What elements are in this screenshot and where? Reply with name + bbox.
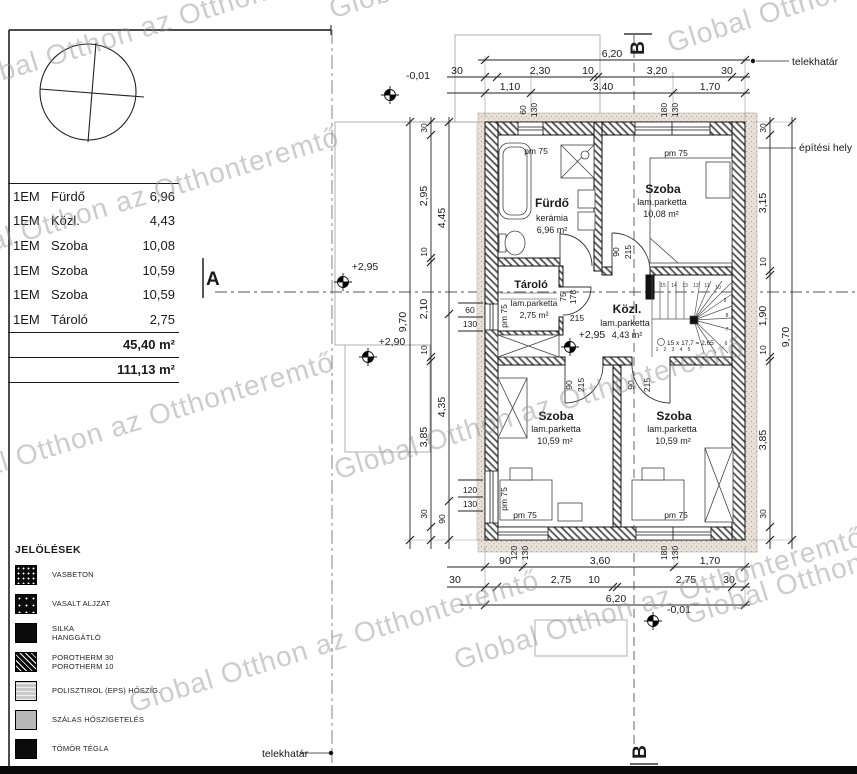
porotherm-swatch-icon [15,652,37,672]
dim: 180 [659,546,669,560]
legend-label: VASALT ALJZAT [52,599,110,608]
door-dim: 90 [564,380,574,390]
row-name: Közl. [51,213,123,228]
dim: 30 [721,65,733,77]
dim: 130 [670,546,680,560]
dim: 10 [588,574,600,586]
dim: 30 [451,65,463,77]
window-left-small [485,304,498,330]
stair-no: 15 [660,283,666,289]
stair-no: 4 [680,347,683,353]
row-area: 6,96 [123,189,179,204]
table-row: 1EMSzoba10,08 [8,233,179,258]
legend-item: VASALT ALJZAT [15,594,245,614]
row-floor: 1EM [8,189,51,204]
stair-no: 6 [725,341,728,347]
fiber-insulation-swatch-icon [15,710,37,730]
dim-left-total: 9,70 [397,312,409,333]
row-name: Tároló [51,312,123,327]
dim: 30 [758,509,768,519]
row-floor: 1EM [8,238,51,253]
dim: 30 [758,123,768,133]
table-row: 1EMTároló2,75 [8,307,179,332]
dim: 120 [509,546,519,560]
dim: 130 [670,103,680,117]
dim: 180 [659,103,669,117]
room-mat: lam.parketta [647,424,697,434]
stair-no: 10 [715,285,721,291]
door-dim: 215 [570,313,584,323]
dim: 30 [723,574,735,586]
table-total-row: 111,13 m² [8,358,179,382]
dim: 3,40 [593,81,614,93]
dim: 10 [419,247,429,257]
dim: 3,85 [418,427,430,448]
stair-no: 5 [688,347,691,353]
table-row: 1EMSzoba10,59 [8,258,179,283]
door-dim: 215 [642,378,652,392]
row-area: 10,59 [123,287,179,302]
stair-no: 14 [671,283,677,289]
legend-item: TÖMÖR TÉGLA [15,739,245,759]
dim: 2,75 [676,574,697,586]
legend: JELÖLÉSEK VASBETON VASALT ALJZAT SILKAHA… [15,544,245,759]
stair-no: 13 [682,283,688,289]
pm75-label: pm 75 [524,146,548,156]
window-left-large [485,471,498,523]
stair-no: 9 [724,298,727,304]
row-floor: 1EM [8,213,51,228]
dim: 3,60 [590,555,611,567]
dim: 3,85 [757,430,769,451]
dim: 3,15 [757,193,769,214]
room-mat: kerámia [536,213,568,223]
legend-label: POROTHERM 10 [52,662,114,671]
legend-item: POLISZTIROL (EPS) HŐSZIG. [15,681,245,701]
blueprint-page: A B B [0,0,857,774]
room-mat: lam.parketta [600,318,650,328]
closet-shaft [498,335,559,357]
legend-label: POROTHERM 30 [52,653,114,662]
washbasin [578,190,595,208]
row-name: Szoba [51,287,123,302]
legend-label: VASBETON [52,570,94,579]
dim: 4,45 [436,208,448,229]
section-marker-b-top: B [628,41,649,55]
row-name: Szoba [51,238,123,253]
row-name: Fürdő [51,189,123,204]
dim: 30 [449,574,461,586]
dim-top-total: 6,20 [602,48,623,60]
legend-label: HANGGÁTLÓ [52,633,101,642]
stair-no: 1 [656,347,659,353]
side-table [558,503,582,521]
table-subtotal-row: 45,40 m² [8,333,179,357]
section-marker-a: A [206,269,220,290]
telekhatar-label-bottom: telekhatár [262,748,309,760]
row-area: 4,43 [123,213,179,228]
dim: 10 [758,345,768,355]
pm75-label: pm 75 [513,510,537,520]
level-plus295: +2,95 [352,261,379,273]
subtotal-value: 45,40 m² [8,337,179,352]
wardrobe [705,448,733,522]
table-row: 1EMFürdő6,96 [8,184,179,209]
level-minus001-bottom: -0,01 [667,604,691,616]
dim: 60 [465,305,475,315]
eps-insulation-swatch-icon [15,681,37,701]
area-table: 1EMFürdő6,96 1EMKözl.4,43 1EMSzoba10,08 … [8,183,179,383]
dim: 1,70 [700,555,721,567]
room-area: 6,96 m² [537,225,568,235]
table-row: 1EMKözl.4,43 [8,209,179,234]
pm75-label: pm 75 [664,510,688,520]
table-row: 1EMSzoba10,59 [8,282,179,307]
dim-bottom-total: 6,20 [606,593,627,605]
dim: 10 [758,257,768,267]
level-plus290: +2,90 [379,336,406,348]
reinforced-concrete-swatch-icon [15,565,37,585]
dim: 90 [437,514,447,524]
dim: 130 [529,103,539,117]
shower [561,145,594,178]
room-kozl: Közl. [613,302,642,316]
room-szoba-br: Szoba [656,409,692,423]
room-tarolo: Tároló [514,279,548,291]
stair-no: 2 [664,347,667,353]
door-dim: 75 [558,292,568,302]
window-bottom-left [498,527,548,540]
legend-item: POROTHERM 30POROTHERM 10 [15,652,245,672]
row-floor: 1EM [8,312,51,327]
room-szoba-bl: Szoba [538,409,574,423]
room-area: 4,43 m² [612,330,643,340]
dim-right-total: 9,70 [780,327,792,348]
total-value: 111,13 m² [8,362,179,377]
legend-item: SILKAHANGGÁTLÓ [15,623,245,643]
north-compass-icon [40,43,144,142]
dim: 3,20 [647,65,668,77]
room-mat: lam.parketta [637,197,687,207]
dim: 2,75 [551,574,572,586]
stair-no: 11 [704,283,709,289]
room-mat: lam.parketta [511,298,558,308]
dim: 130 [463,499,477,509]
legend-item: VASBETON [15,565,245,585]
row-floor: 1EM [8,263,51,278]
silka-swatch-icon [15,623,37,643]
telekhatar-label-top: telekhatár [792,56,839,68]
door-dim: 90 [626,380,636,390]
stair-no: 8 [726,313,729,319]
reinforced-screed-swatch-icon [15,594,37,614]
window-top-large [635,122,710,135]
dim: 30 [419,509,429,519]
epitesi-hely-label: építési hely [799,142,853,154]
door-dim: 90 [611,247,621,257]
pm75-label: pm 75 [499,304,509,328]
dim: 130 [520,546,530,560]
row-floor: 1EM [8,287,51,302]
room-szoba-top: Szoba [645,182,681,196]
legend-label: SZÁLAS HŐSZIGETELÉS [52,715,144,724]
solid-brick-swatch-icon [15,739,37,759]
door-bathroom [560,232,592,266]
level-plus295-inner: +2,95 [579,329,606,341]
dim: 2,95 [418,186,430,207]
window-top-small [518,122,543,135]
door-dim: 215 [576,378,586,392]
room-area: 10,59 m² [655,436,691,446]
dim: 1,10 [500,81,521,93]
sheet-bottom-bar [0,766,857,774]
window-bottom-right [636,527,711,540]
stair-formula: 15 x 17,7 = 2,65 [667,340,714,347]
dim: 120 [463,485,477,495]
room-area: 10,59 m² [537,436,573,446]
stair-no: 3 [672,347,675,353]
dim: 4,35 [436,397,448,418]
room-mat: lam.parketta [531,424,581,434]
wardrobe [498,378,527,438]
room-area: 10,08 m² [643,209,679,219]
legend-item: SZÁLAS HŐSZIGETELÉS [15,710,245,730]
row-area: 10,08 [123,238,179,253]
dim: 60 [518,105,528,115]
dim: 10 [419,345,429,355]
washbasin [578,212,595,230]
pm75-label: pm 75 [664,148,688,158]
room-furdo: Fürdő [535,196,569,210]
door-dim: 215 [623,245,633,259]
dim: 2,30 [530,65,551,77]
legend-label: TÖMÖR TÉGLA [52,744,109,753]
dim: 30 [419,123,429,133]
dim: 130 [463,319,477,329]
dim: 1,70 [700,81,721,93]
stair-no: 12 [693,283,699,289]
level-minus001-top: -0,01 [406,70,430,82]
dim: 2,10 [418,299,430,320]
pm75-label: pm 75 [499,487,509,511]
row-name: Szoba [51,263,123,278]
legend-label: SILKA [52,624,101,633]
toilet [499,231,525,255]
section-marker-b-bottom: B [630,745,651,759]
row-area: 10,59 [123,263,179,278]
door-dim: 178 [568,290,578,304]
legend-title: JELÖLÉSEK [15,544,245,556]
row-area: 2,75 [123,312,179,327]
legend-label: POLISZTIROL (EPS) HŐSZIG. [52,686,161,695]
dim: 10 [582,65,594,77]
stair-no: 7 [726,327,729,333]
dim: 1,90 [757,306,769,327]
room-area: 2,75 m² [520,310,549,320]
